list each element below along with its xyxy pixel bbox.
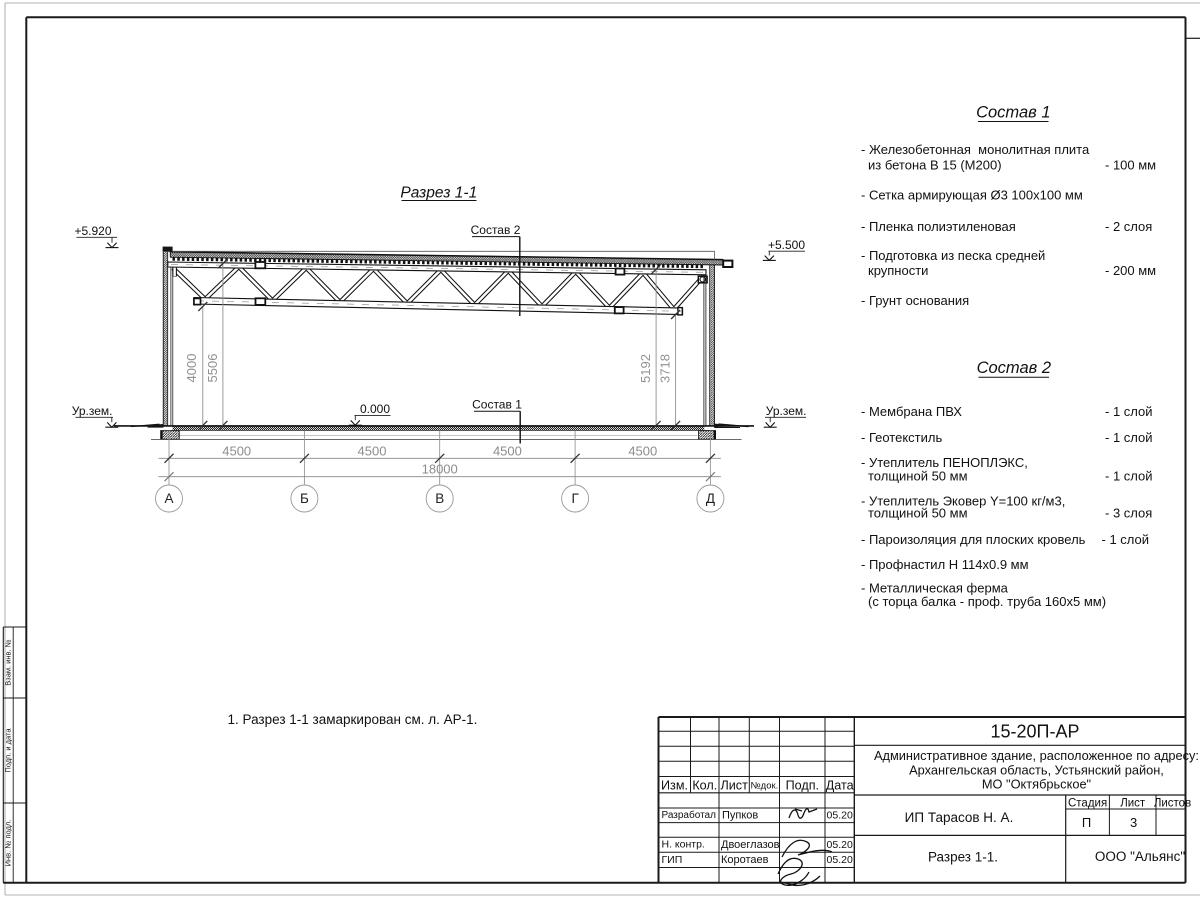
svg-text:Стадия: Стадия [1068, 797, 1107, 809]
svg-text:ООО "Альянс": ООО "Альянс" [1095, 849, 1185, 864]
svg-text:4500: 4500 [628, 443, 657, 458]
svg-text:Н. контр.: Н. контр. [662, 839, 705, 851]
svg-text:- Пароизоляция для плоских кро: - Пароизоляция для плоских кровель [861, 532, 1086, 547]
svg-text:Коротаев: Коротаев [721, 854, 769, 866]
svg-text:Двоеглазов: Двоеглазов [721, 839, 780, 851]
svg-text:Ур.зем.: Ур.зем. [72, 404, 113, 418]
svg-text:- Пленка полиэтиленовая: - Пленка полиэтиленовая [861, 219, 1016, 234]
svg-text:- Подготовка из песка средней: - Подготовка из песка средней [861, 248, 1045, 263]
svg-text:5506: 5506 [205, 354, 220, 383]
svg-text:толщиной 50 мм: толщиной 50 мм [868, 506, 968, 521]
svg-text:05.20: 05.20 [827, 839, 853, 851]
svg-text:№док.: №док. [750, 781, 778, 792]
svg-text:Состав 2: Состав 2 [471, 223, 521, 237]
svg-text:Архангельская область, Устьянс: Архангельская область, Устьянский район, [909, 763, 1164, 778]
svg-text:Дата: Дата [826, 778, 854, 792]
svg-text:- 1 слой: - 1 слой [1105, 469, 1153, 484]
svg-text:+5.920: +5.920 [74, 224, 111, 238]
svg-text:3718: 3718 [658, 354, 673, 383]
svg-text:- Железобетонная монолитная п: - Железобетонная монолитная плита [861, 142, 1090, 157]
svg-text:Состав 2: Состав 2 [977, 359, 1051, 377]
svg-text:Изм.: Изм. [661, 778, 688, 792]
svg-text:4500: 4500 [358, 443, 387, 458]
svg-text:Подп. и дата: Подп. и дата [3, 728, 12, 773]
svg-text:П: П [1082, 815, 1091, 830]
svg-text:1. Разрез 1-1 замаркирован см.: 1. Разрез 1-1 замаркирован см. л. АР-1. [228, 712, 478, 727]
svg-text:А: А [164, 491, 173, 506]
svg-text:05.20: 05.20 [827, 809, 853, 821]
svg-text:Кол.: Кол. [692, 778, 717, 792]
svg-text:Ур.зем.: Ур.зем. [766, 404, 807, 418]
svg-text:Разрез 1-1: Разрез 1-1 [400, 185, 477, 202]
svg-text:ИП Тарасов Н. А.: ИП Тарасов Н. А. [905, 810, 1014, 825]
svg-text:- Мембрана ПВХ: - Мембрана ПВХ [861, 404, 962, 419]
svg-text:Пупков: Пупков [722, 809, 758, 821]
svg-text:- 1 слой: - 1 слой [1102, 532, 1150, 547]
svg-text:4500: 4500 [222, 443, 251, 458]
svg-text:МО "Октябрьское": МО "Октябрьское" [982, 777, 1091, 792]
svg-text:Состав 1: Состав 1 [472, 398, 522, 412]
svg-text:из бетона В 15 (М200): из бетона В 15 (М200) [868, 158, 1002, 173]
svg-text:крупности: крупности [868, 263, 928, 278]
svg-text:Листов: Листов [1154, 797, 1191, 809]
svg-text:- Грунт основания: - Грунт основания [861, 293, 969, 308]
svg-text:- Сетка армирующая Ø3 100х100: - Сетка армирующая Ø3 100х100 мм [861, 187, 1083, 202]
svg-text:5192: 5192 [638, 354, 653, 383]
svg-text:- 100 мм: - 100 мм [1105, 158, 1156, 173]
svg-text:15-20П-АР: 15-20П-АР [991, 722, 1080, 742]
svg-text:- Геотекстиль: - Геотекстиль [861, 430, 942, 445]
svg-text:- 200 мм: - 200 мм [1105, 263, 1156, 278]
svg-text:4000: 4000 [184, 354, 199, 383]
svg-text:Административное здание, распо: Административное здание, расположенное п… [874, 748, 1199, 763]
svg-text:4500: 4500 [493, 443, 522, 458]
svg-text:Состав 1: Состав 1 [976, 104, 1050, 122]
svg-text:- 2 слоя: - 2 слоя [1105, 219, 1152, 234]
svg-text:Инв. № подл.: Инв. № подл. [3, 820, 12, 867]
svg-text:ГИП: ГИП [662, 854, 683, 866]
svg-text:- 1 слой: - 1 слой [1105, 404, 1153, 419]
svg-text:Взам. инв. №: Взам. инв. № [3, 639, 12, 685]
svg-text:Разрез 1-1.: Разрез 1-1. [928, 849, 998, 864]
svg-text:Лист: Лист [1120, 797, 1146, 809]
svg-text:- Профнастил Н 114х0.9 мм: - Профнастил Н 114х0.9 мм [861, 557, 1029, 572]
svg-text:Разработал: Разработал [662, 809, 717, 821]
svg-text:Б: Б [300, 491, 309, 506]
svg-text:Лист: Лист [721, 778, 749, 792]
svg-text:(с торца балка - проф. труба 1: (с торца балка - проф. труба 160х5 мм) [868, 594, 1106, 609]
svg-text:0.000: 0.000 [360, 402, 390, 416]
svg-text:Подп.: Подп. [786, 778, 819, 792]
svg-text:3: 3 [1130, 815, 1137, 830]
svg-text:- 1 слой: - 1 слой [1105, 430, 1153, 445]
svg-text:Г: Г [571, 491, 579, 506]
svg-text:- 3 слоя: - 3 слоя [1105, 506, 1152, 521]
svg-text:В: В [435, 491, 444, 506]
svg-text:Д: Д [706, 491, 715, 506]
svg-text:толщиной 50 мм: толщиной 50 мм [868, 469, 968, 484]
svg-text:18000: 18000 [422, 462, 458, 477]
svg-text:05.20: 05.20 [827, 854, 853, 866]
svg-text:+5.500: +5.500 [768, 238, 805, 252]
